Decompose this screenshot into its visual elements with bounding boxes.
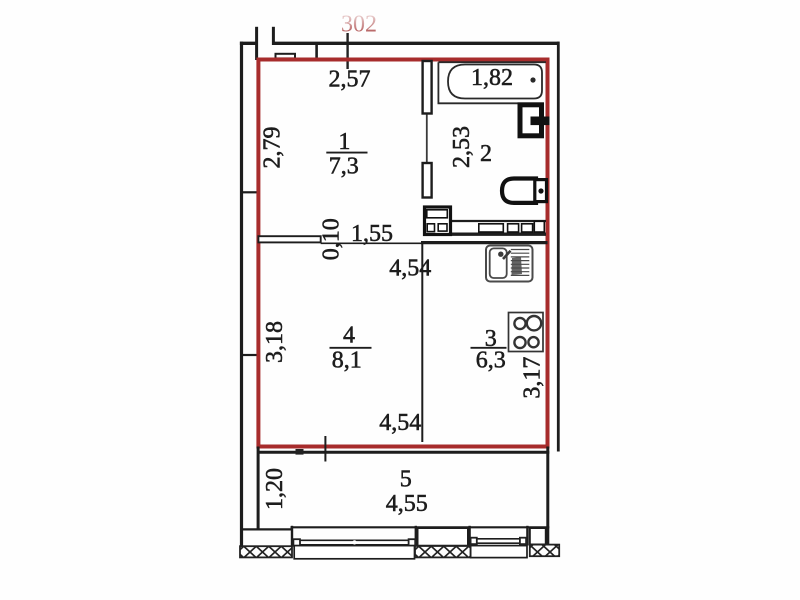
svg-text:4: 4 <box>343 323 355 349</box>
svg-text:1,82: 1,82 <box>471 65 513 91</box>
svg-text:8,1: 8,1 <box>332 348 362 374</box>
svg-text:7,3: 7,3 <box>329 154 359 180</box>
svg-text:5: 5 <box>400 467 412 493</box>
svg-text:2,53: 2,53 <box>449 126 475 168</box>
svg-text:6,3: 6,3 <box>476 348 506 374</box>
svg-text:2: 2 <box>480 141 492 167</box>
svg-text:4,55: 4,55 <box>386 491 428 517</box>
svg-text:4,54: 4,54 <box>389 255 431 281</box>
svg-text:1,20: 1,20 <box>262 468 288 510</box>
svg-text:4,54: 4,54 <box>379 410 421 436</box>
svg-text:2,79: 2,79 <box>260 127 286 169</box>
svg-text:3,18: 3,18 <box>262 321 288 363</box>
svg-text:1,55: 1,55 <box>351 221 393 247</box>
svg-text:2,57: 2,57 <box>329 67 371 93</box>
svg-text:3,17: 3,17 <box>520 357 546 399</box>
svg-text:0,10: 0,10 <box>319 218 345 260</box>
svg-text:1: 1 <box>338 129 350 155</box>
